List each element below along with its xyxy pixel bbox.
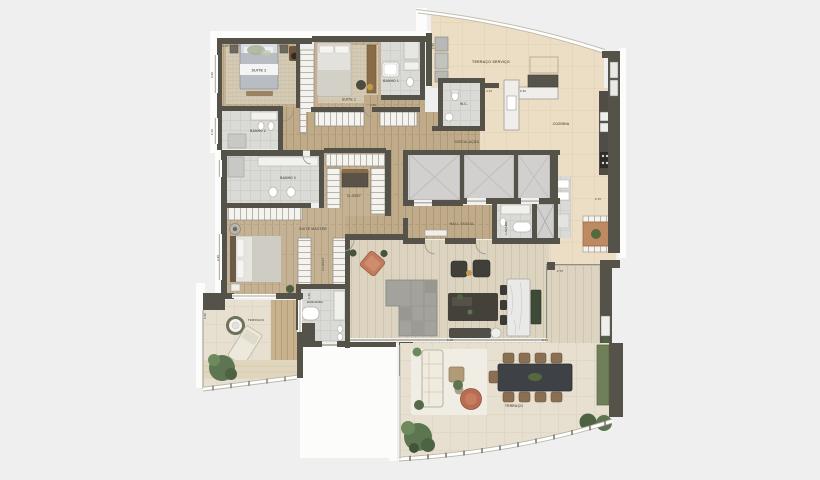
svg-text:4.10: 4.10 bbox=[486, 89, 492, 93]
svg-text:LAVABO: LAVABO bbox=[504, 221, 508, 235]
svg-text:4.30: 4.30 bbox=[210, 72, 214, 78]
svg-text:2.15: 2.15 bbox=[595, 197, 601, 201]
svg-text:2.96: 2.96 bbox=[431, 43, 435, 49]
svg-text:2.76: 2.76 bbox=[557, 269, 563, 273]
svg-text:CIRCULAÇÃO: CIRCULAÇÃO bbox=[455, 139, 480, 144]
svg-text:TERRAÇO SERVIÇO: TERRAÇO SERVIÇO bbox=[472, 60, 510, 64]
svg-text:2.20: 2.20 bbox=[520, 89, 526, 93]
svg-text:3.46: 3.46 bbox=[542, 338, 548, 342]
svg-text:CLOSET: CLOSET bbox=[321, 257, 325, 270]
svg-text:1.06: 1.06 bbox=[307, 293, 311, 299]
svg-text:3.40: 3.40 bbox=[222, 44, 228, 48]
svg-text:SUITE 1: SUITE 1 bbox=[342, 98, 356, 102]
svg-text:COZINHA: COZINHA bbox=[553, 122, 570, 126]
svg-text:0.80: 0.80 bbox=[370, 103, 376, 107]
svg-text:BANHO 2: BANHO 2 bbox=[250, 129, 266, 133]
svg-text:BANHEIRA: BANHEIRA bbox=[307, 300, 323, 304]
svg-text:W.C.: W.C. bbox=[460, 102, 468, 106]
svg-text:2.10: 2.10 bbox=[210, 129, 214, 135]
svg-text:SUITE MASTER: SUITE MASTER bbox=[299, 227, 327, 231]
svg-text:HALL SOCIAL: HALL SOCIAL bbox=[450, 222, 475, 226]
svg-text:TERRAÇO: TERRAÇO bbox=[248, 318, 265, 322]
svg-text:BANHO 1: BANHO 1 bbox=[383, 79, 399, 83]
svg-text:5.48: 5.48 bbox=[447, 338, 453, 342]
svg-text:TERRAÇO: TERRAÇO bbox=[505, 404, 523, 408]
svg-text:3.40: 3.40 bbox=[203, 313, 207, 319]
svg-text:SUITE 2: SUITE 2 bbox=[252, 69, 267, 73]
svg-text:4.45: 4.45 bbox=[216, 255, 220, 261]
svg-text:BANHO 3: BANHO 3 bbox=[280, 176, 296, 180]
svg-text:CLOSET: CLOSET bbox=[347, 194, 361, 198]
